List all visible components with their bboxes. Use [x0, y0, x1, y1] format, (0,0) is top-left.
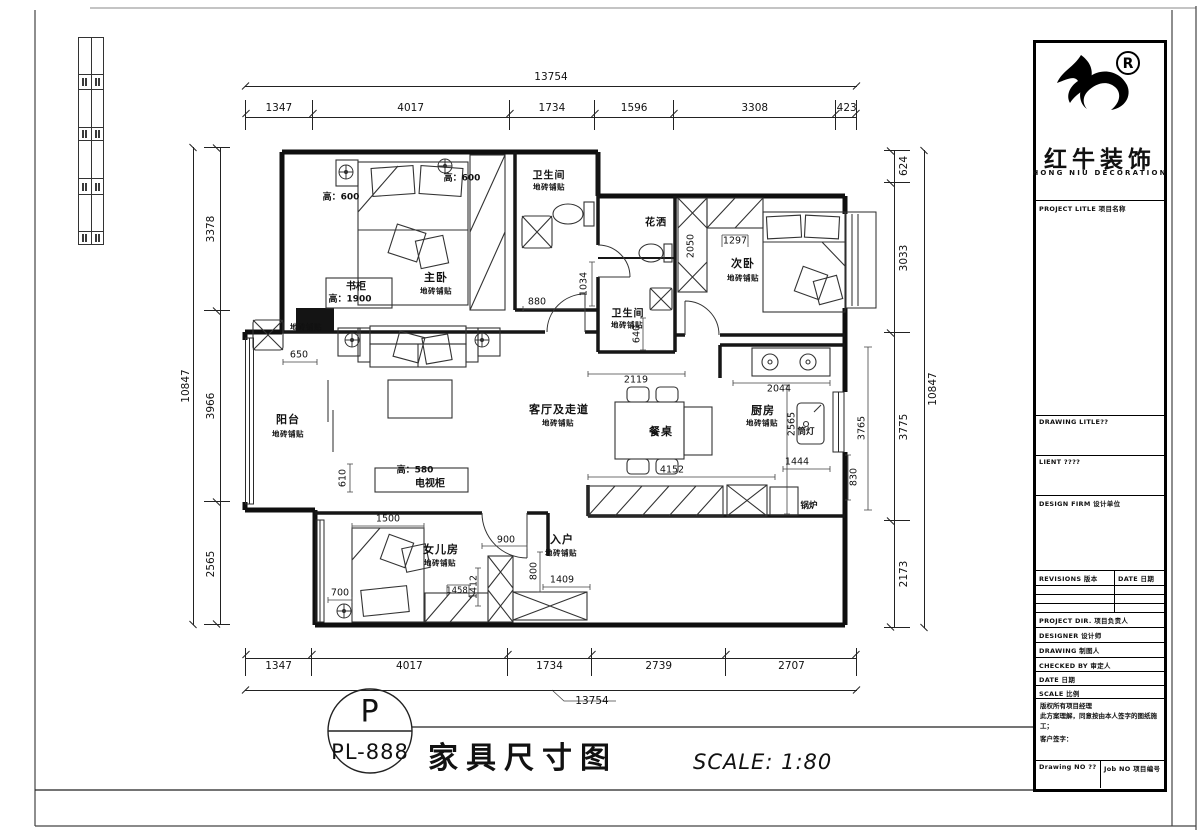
titleblock-checked-by: CHECKED BY 审定人	[1036, 658, 1164, 672]
room-label-living: 客厅及走道	[529, 401, 589, 417]
dim-left-total: 10847	[180, 369, 192, 402]
dim-880: 880	[528, 297, 546, 308]
label-bookcase: 书柜	[346, 278, 366, 293]
dim-left-total-line	[193, 147, 194, 625]
titleblock-revisions-date: DATE 日期	[1114, 571, 1164, 585]
titleblock-note2: 此方案理解，同意按由本人签字的图纸施工；	[1040, 712, 1160, 732]
room-finish-living: 地砖铺贴	[542, 418, 574, 429]
titleblock-designer: DESIGNER 设计师	[1036, 628, 1164, 642]
dim-top-3: 1596	[621, 102, 648, 114]
dim-top-total: 13754	[534, 71, 567, 83]
room-label-bedroom2: 次卧	[731, 255, 755, 271]
dim-bottom-total: 13754	[575, 695, 608, 707]
dim-4152: 4152	[660, 465, 684, 476]
brand-name-en: HONG NIU DECORATION	[1032, 169, 1167, 177]
label-boiler: 锅炉	[800, 499, 817, 511]
room-finish-master: 地砖铺贴	[420, 286, 452, 297]
dim-2050: 2050	[686, 234, 697, 258]
titleblock-project-dir: PROJECT DIR. 项目负责人	[1036, 613, 1164, 627]
room-label-bath-mid: 卫生间	[612, 305, 645, 320]
room-label-shower: 花洒	[645, 214, 667, 229]
titleblock-drawing-title: DRAWING LITLE??	[1036, 416, 1164, 428]
dim-1500: 1500	[376, 514, 400, 525]
room-finish-kitchen: 地砖铺贴	[746, 418, 778, 429]
dim-bottom-2: 1734	[536, 660, 563, 672]
drawing-badge-letter: P	[360, 695, 379, 730]
titleblock-job-no: Job NO 项目编号	[1100, 761, 1164, 788]
label-bookcase-height: 高：1900	[328, 292, 371, 305]
titleblock: R 红牛装饰 HONG NIU DECORATION PROJECT LITLE…	[1033, 40, 1167, 792]
dim-left-0: 3378	[205, 216, 217, 243]
titleblock-note1: 版权所有项目经理	[1040, 702, 1160, 712]
dim-right-total-line	[924, 150, 925, 628]
titleblock-drawing: DRAWING 制图人	[1036, 643, 1164, 657]
titleblock-project-title: PROJECT LITLE 项目名称	[1036, 201, 1164, 215]
bull-logo-icon: R	[1036, 43, 1164, 138]
label-height600-right: 高：600	[444, 171, 481, 184]
titleblock-note3: 客户签字：	[1040, 735, 1160, 745]
room-label-bath-top: 卫生间	[533, 167, 566, 182]
room-label-entry: 入户	[550, 531, 574, 547]
dim-left-1: 3966	[205, 393, 217, 420]
dim-bottom-4: 2707	[778, 660, 805, 672]
dim-3765: 3765	[857, 416, 868, 440]
dim-right-3: 2173	[898, 561, 910, 588]
room-finish-daughter: 地砖铺贴	[424, 558, 456, 569]
dim-right-2: 3775	[898, 413, 910, 440]
dim-bottom-1: 4017	[396, 660, 423, 672]
dim-2044: 2044	[767, 384, 791, 395]
room-label-daughter: 女儿房	[423, 541, 459, 557]
dim-right-1: 3033	[898, 244, 910, 271]
brand-logo-box: R 红牛装饰 HONG NIU DECORATION	[1036, 43, 1164, 201]
titleblock-scale: SCALE 比例	[1036, 686, 1164, 700]
dim-2119: 2119	[624, 375, 648, 386]
room-label-kitchen: 厨房	[751, 402, 775, 418]
dim-top-5: 423	[837, 102, 857, 114]
dim-700: 700	[331, 588, 349, 599]
dim-chain-right: 624 3033 3775 2173	[884, 150, 910, 628]
room-finish-entry: 地砖铺贴	[545, 548, 577, 559]
dim-2565: 2565	[787, 412, 798, 436]
label-dining-table: 餐桌	[649, 423, 673, 439]
room-label-balcony: 阳台	[276, 411, 300, 427]
dim-right-total: 10847	[927, 372, 939, 405]
drawing-sheet: { "sheet": { "badge_letter": "P", "badge…	[0, 0, 1200, 834]
label-tile-patch: 地砖铺贴	[290, 322, 322, 333]
dim-bottom-0: 1347	[265, 660, 292, 672]
dim-830: 830	[849, 468, 860, 486]
dim-chain-bottom: 1347 4017 1734 2739 2707	[245, 648, 857, 676]
titleblock-date: DATE 日期	[1036, 672, 1164, 686]
room-label-master: 主卧	[424, 269, 448, 285]
dim-chain-left: 3378 3966 2565	[204, 147, 230, 625]
dim-top-total-line	[245, 86, 857, 87]
dim-bottom-3: 2739	[645, 660, 672, 672]
dim-top-2: 1734	[539, 102, 566, 114]
titleblock-revisions: REVISIONS 版本	[1036, 571, 1114, 585]
dim-1409: 1409	[550, 575, 574, 586]
label-downlight: 筒灯	[797, 425, 814, 437]
dim-1458: 1458	[446, 586, 468, 596]
sheet-scale: SCALE: 1:80	[693, 750, 832, 774]
room-finish-bath-top: 地砖铺贴	[533, 182, 565, 193]
sheet-fold-marks	[78, 37, 104, 245]
titleblock-drawing-no: Drawing NO ??	[1036, 761, 1100, 788]
dim-610: 610	[338, 469, 349, 487]
dim-1412: 1412	[469, 575, 480, 599]
dim-900: 900	[497, 535, 515, 546]
dim-chain-top: 1347 4017 1734 1596 3308 423	[245, 100, 857, 130]
label-height600-left: 高：600	[323, 190, 360, 203]
dim-top-4: 3308	[741, 102, 768, 114]
dim-1444: 1444	[785, 457, 809, 468]
titleblock-client: LIENT ????	[1036, 456, 1164, 468]
dim-left-2: 2565	[205, 550, 217, 577]
dim-top-0: 1347	[265, 102, 292, 114]
dim-650: 650	[290, 350, 308, 361]
titleblock-design-firm: DESIGN FIRM 设计单位	[1036, 496, 1164, 510]
sheet-title: 家具尺寸图	[428, 733, 618, 777]
room-finish-balcony: 地砖铺贴	[272, 429, 304, 440]
dim-right-0: 624	[898, 156, 910, 176]
dim-bottom-total-line	[245, 690, 857, 691]
dim-1297: 1297	[723, 236, 747, 247]
drawing-badge-code: PL-888	[331, 740, 409, 764]
dim-top-1: 4017	[397, 102, 424, 114]
svg-text:R: R	[1123, 56, 1134, 72]
dim-800: 800	[529, 562, 540, 580]
dim-1034: 1034	[579, 272, 590, 296]
dim-640: 640	[632, 325, 643, 343]
label-tv-cabinet: 电视柜	[415, 475, 445, 490]
room-finish-bedroom2: 地砖铺贴	[727, 273, 759, 284]
